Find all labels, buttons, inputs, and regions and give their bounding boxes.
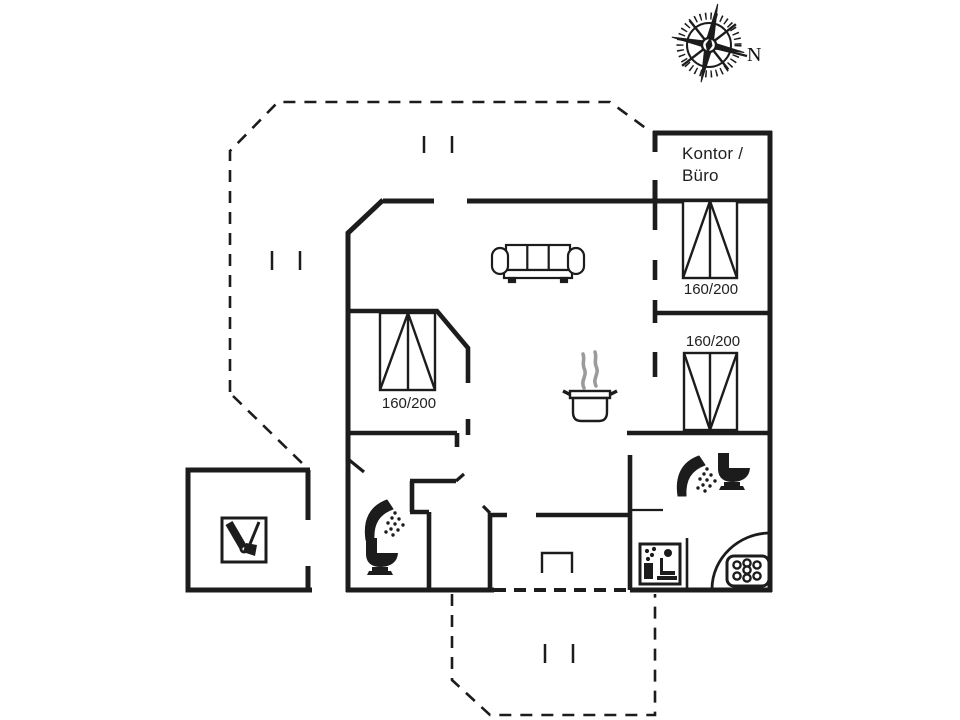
door-jambs [348, 459, 490, 513]
cooking-pot-icon [563, 352, 617, 421]
office-room-label-line1: Kontor / [682, 143, 743, 165]
floor-plan-drawing [0, 0, 960, 720]
sauna-icon [640, 544, 680, 584]
entrance-step [542, 553, 572, 573]
whirlpool-icon [727, 556, 769, 586]
bed-size-label: 160/200 [671, 281, 751, 298]
office-room-label: Kontor / Büro [682, 143, 743, 187]
bed-size-label: 160/200 [673, 333, 753, 350]
toilet-icon [366, 538, 398, 575]
office-room-label-line2: Büro [682, 165, 743, 187]
bed-size-label: 160/200 [369, 395, 449, 412]
compass-rose-icon [664, 0, 753, 90]
garden-tools-icon [222, 518, 266, 562]
steam-lines [583, 352, 597, 388]
shower-icon [677, 456, 716, 496]
bed-middle-right [684, 353, 737, 430]
bed-top-right [683, 201, 737, 278]
shower-icon [365, 500, 404, 540]
north-label: N [747, 44, 761, 67]
toilet-icon [718, 453, 750, 490]
floor-plan: Kontor / Büro 160/200 160/200 160/200 N [0, 0, 960, 720]
sofa-icon [492, 245, 584, 282]
bed-left [380, 313, 435, 390]
